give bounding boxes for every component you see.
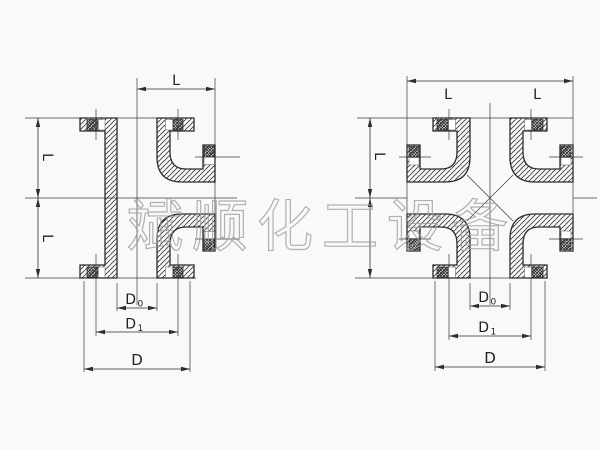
cross-dim-label-length-top-right: L bbox=[533, 87, 541, 103]
tee-dim-label-length-top: L bbox=[172, 73, 180, 89]
tee-dim-label-bolt-circle-subscript: 1 bbox=[138, 324, 144, 334]
fittings-diagram: L L L D 0 D 1 D bbox=[0, 0, 600, 450]
cross-dim-label-length-side: L bbox=[371, 152, 387, 160]
tee-dim-label-bolt-circle: D bbox=[125, 317, 136, 333]
cross-dim-label-bore-diameter: D bbox=[478, 290, 489, 306]
tee-dim-label-flange-diameter: D bbox=[131, 351, 143, 369]
tee-dim-label-length-lower: L bbox=[39, 234, 55, 242]
cross-dim-label-bore-diameter-subscript: 0 bbox=[491, 298, 497, 308]
cross-dim-label-flange-diameter: D bbox=[484, 349, 496, 367]
cross-dim-label-bolt-circle: D bbox=[478, 320, 489, 336]
cross-dim-label-bolt-circle-subscript: 1 bbox=[491, 328, 497, 338]
company-watermark: 斌顺化工设备 bbox=[127, 195, 517, 260]
tee-dim-label-bore-diameter: D bbox=[125, 292, 136, 308]
cross-dim-label-length-top-left: L bbox=[444, 87, 452, 103]
tee-dim-label-bore-diameter-subscript: 0 bbox=[138, 300, 144, 310]
engineering-drawing-page: L L L D 0 D 1 D bbox=[0, 0, 600, 450]
tee-dim-label-length-upper: L bbox=[39, 153, 55, 161]
